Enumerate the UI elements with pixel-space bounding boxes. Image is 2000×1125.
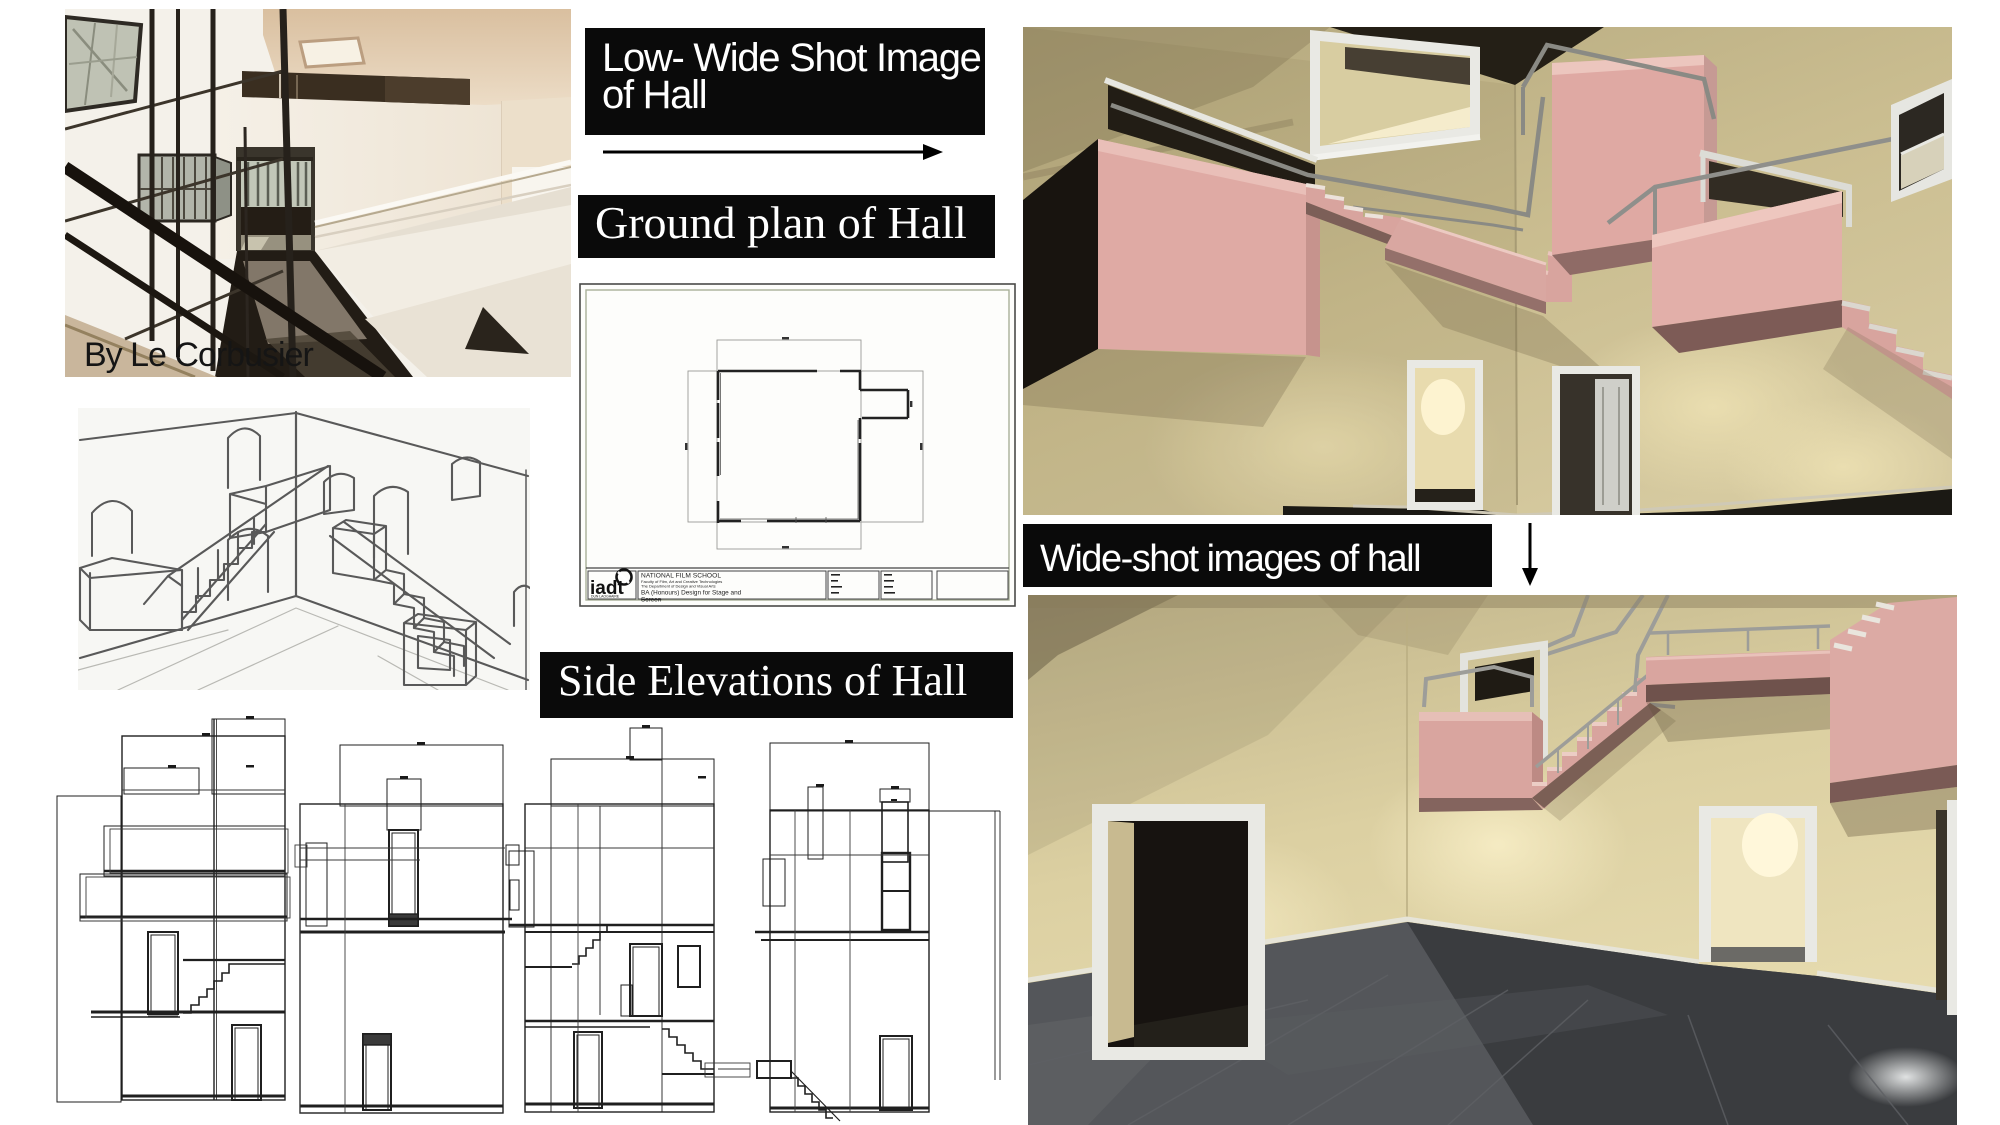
- svg-text:DUN LAOGHAIRE: DUN LAOGHAIRE: [591, 595, 620, 599]
- svg-text:BA (Honours) Design for Stage: BA (Honours) Design for Stage and: [641, 590, 742, 597]
- svg-text:The Department of Design and V: The Department of Design and Visual Arts: [641, 584, 716, 589]
- svg-text:Screen: Screen: [641, 597, 662, 604]
